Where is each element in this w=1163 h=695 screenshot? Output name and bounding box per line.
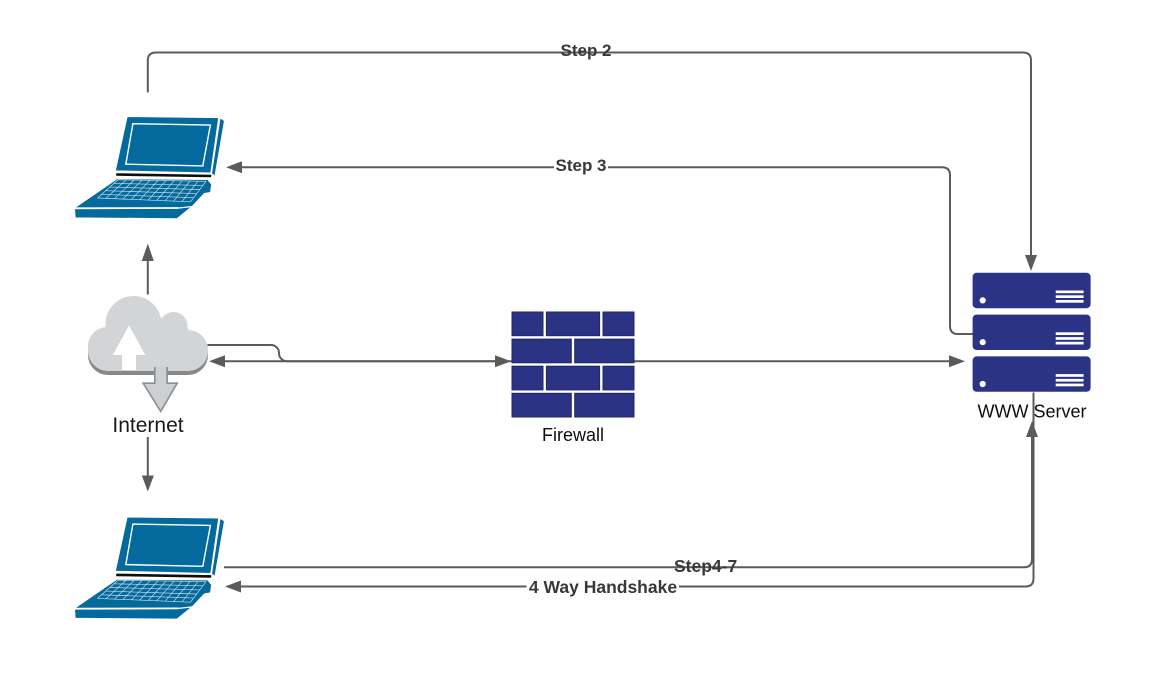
svg-text:Step4-7: Step4-7 <box>674 556 737 576</box>
svg-text:Internet: Internet <box>112 414 183 437</box>
svg-text:WWW Server: WWW Server <box>978 402 1087 422</box>
svg-text:Step 2: Step 2 <box>560 41 611 60</box>
svg-text:4 Way Handshake: 4 Way Handshake <box>529 577 677 597</box>
svg-text:Firewall: Firewall <box>542 425 604 445</box>
svg-text:Step 3: Step 3 <box>555 156 606 175</box>
